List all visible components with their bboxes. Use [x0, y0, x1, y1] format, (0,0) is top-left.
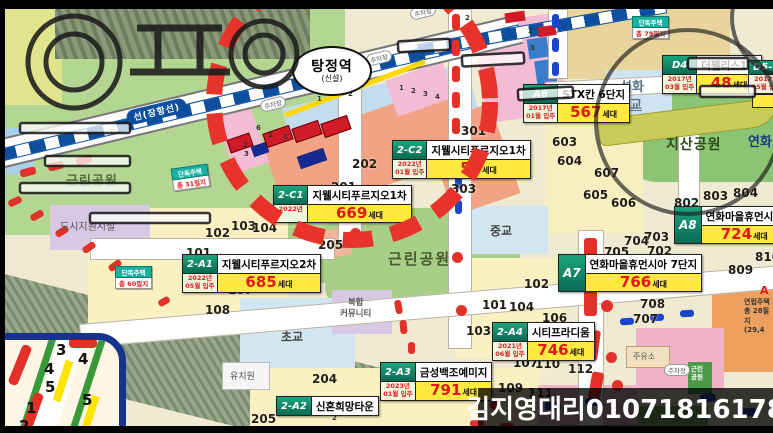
route-dash [452, 14, 460, 30]
complex-code: 2-A1 [182, 254, 218, 274]
complex-units: 685세대 [218, 274, 321, 293]
inset-red-bar-3 [69, 338, 97, 348]
route-dash [680, 310, 694, 318]
block-number: 603 [552, 135, 577, 149]
detached-housing-label: 단독주택총 79필지 [632, 16, 669, 39]
complex-code: 2-A3 [380, 362, 416, 382]
route-dash [399, 320, 407, 335]
detached-housing-title: 단독주택 [115, 266, 152, 278]
route-dash [552, 62, 559, 76]
city-support-label: 도시지원시설 [60, 218, 115, 233]
block-number: 205 [318, 238, 343, 252]
complex-units: 52세대 [427, 160, 530, 179]
gas-station-label: 주유소 [633, 351, 655, 362]
plot-number: 3 [530, 44, 535, 52]
frame-left [0, 0, 5, 433]
inset-red-bar-1 [7, 344, 32, 387]
complex-title: 지웰시티푸르지오1차 [427, 140, 530, 160]
inset-number: 5 [45, 378, 55, 396]
complex-units: 567세대 [558, 104, 630, 123]
plot-number: 2 [243, 141, 248, 149]
complex-year: 2021년 06월 입주 [492, 342, 528, 361]
plot-number: 3 [423, 90, 428, 98]
field-area-topleft [0, 9, 62, 105]
block-number: 605 [583, 188, 608, 202]
complex-label-D5-1: D5-1 2017년 05월 입주 [748, 60, 773, 94]
station-badge: 탕정역 (신설) [292, 46, 372, 96]
parking-label: 주차장 [664, 364, 690, 376]
complex-title: 지웰시티푸르지오2차 [218, 254, 321, 274]
aerial-photo-strip [55, 9, 310, 59]
plot-number: 1 [399, 84, 404, 92]
route-dash [452, 118, 460, 134]
d5-units-sliver [752, 94, 773, 108]
block-number: 707 [633, 312, 658, 326]
complex-code: A6 [523, 84, 558, 104]
block-number: 104 [509, 300, 534, 314]
complex-code: D5-1 [748, 60, 773, 75]
route-dash [455, 200, 462, 214]
complex-label-D4: D4 더팰리스1차 2017년 03월 입주 48세대 [662, 55, 762, 94]
complex-label-2A2: 2-A2 신혼희망타운 [276, 396, 379, 416]
kindergarten-label: 유치원 [230, 369, 255, 382]
route-dash [552, 38, 559, 52]
middle-school-label: 중교 [490, 222, 512, 239]
block-number: 301 [461, 124, 486, 138]
block-number: 108 [205, 303, 230, 317]
block-number: 708 [640, 297, 665, 311]
complex-year: 2022년 05월 입주 [182, 274, 218, 293]
complex-units: 746세대 [528, 342, 595, 361]
complex-code: 2-C1 [273, 185, 308, 205]
jisan-park-label: 지산공원 [666, 134, 722, 154]
complex-title: 연화마을휴먼시아 7단지 [586, 254, 703, 274]
block-number: 303 [451, 182, 476, 196]
complex-year: 2017년 05월 입주 [748, 75, 773, 94]
villa-code-label: A [760, 284, 769, 297]
map-canvas: 선(장항선) [0, 0, 773, 433]
block-number: 112 [568, 362, 593, 376]
plot-number: 2 [465, 14, 470, 22]
complex-year: 2023년 01월 입주 [380, 382, 416, 401]
block-number: 809 [728, 263, 753, 277]
complex-units: 724세대 [702, 226, 773, 244]
route-dot [452, 252, 463, 263]
block-number: 202 [352, 157, 377, 171]
complex-title: 연화마을휴먼시아 [702, 206, 773, 226]
frame-bottom [0, 426, 773, 433]
route-dot [601, 300, 613, 312]
complex-year: 2022년 01월 입주 [392, 160, 427, 179]
route-dot [350, 228, 361, 239]
complex-code: D4 [662, 55, 697, 75]
complex-label-2C2: 2-C2 지웰시티푸르지오1차 2022년 01월 입주 52세대 [392, 140, 531, 179]
complex-code: A8 [674, 206, 702, 244]
detached-housing-count: 총 60필지 [115, 278, 152, 289]
park-label-center: 근린공원 [388, 248, 451, 269]
complex-code: 2-A2 [276, 396, 312, 416]
complex-label-2C1: 2-C1 지웰시티푸르지오1차 2022년 669세대 [273, 185, 412, 223]
plot-number: 6 [256, 124, 261, 132]
complex-label-A7: A7 연화마을휴먼시아 7단지 766세대 [558, 254, 702, 292]
block-number: 205 [251, 412, 276, 426]
inset-number: 1 [26, 399, 36, 417]
complex-code: 2-C2 [392, 140, 427, 160]
block-number: 810 [755, 250, 773, 264]
complex-title: STX칸 6단지 [558, 84, 630, 104]
frame-top [0, 0, 773, 9]
block-number: 101 [482, 298, 507, 312]
complex-code: A7 [558, 254, 586, 292]
block-number: 803 [703, 189, 728, 203]
complex-label-A6: A6 STX칸 6단지 2017년 01월 입주 567세대 [523, 84, 630, 123]
plot-number: 4 [435, 93, 440, 101]
detached-housing-count: 총 79필지 [632, 28, 669, 39]
plot-number: 3 [470, 30, 475, 38]
plot-number: 1 [283, 133, 288, 141]
plot-number: 1 [268, 131, 273, 139]
route-dash [552, 14, 559, 28]
block-number: 204 [312, 372, 337, 386]
route-dot [456, 305, 467, 316]
contact-banner-text: 김지영대리01071816178 [466, 389, 773, 426]
route-dash [408, 342, 415, 354]
plot-number: 3 [244, 150, 249, 158]
inset-number: 5 [82, 391, 92, 409]
block-number: 102 [524, 277, 549, 291]
complex-label-A8: A8 연화마을휴먼시아 724세대 [674, 206, 773, 244]
contact-banner: 김지영대리01071816178 [478, 388, 773, 426]
block-number: 607 [594, 166, 619, 180]
complex-units: 766세대 [586, 274, 703, 292]
block-number: 604 [557, 154, 582, 168]
inset-number: 4 [78, 350, 88, 368]
complex-year: 2017년 03월 입주 [662, 75, 697, 94]
park-label-left: 근린공원 [66, 170, 118, 189]
yeonhwa-label: 연화 [748, 131, 772, 150]
station-subtitle: (신설) [322, 75, 343, 83]
block-number: 606 [611, 196, 636, 210]
complex-title: 시티프라디움 [528, 322, 595, 342]
detached-housing-title: 단독주택 [632, 16, 669, 28]
complex-title: 지웰시티푸르지오1차 [308, 185, 411, 205]
plot-number: 2 [411, 87, 416, 95]
complex-units: 669세대 [308, 205, 411, 223]
block-number: 102 [205, 226, 230, 240]
complex-title: 신혼희망타운 [312, 396, 379, 416]
elementary-school-label: 초교 [281, 328, 303, 345]
complex-year: 2017년 01월 입주 [523, 104, 558, 123]
plot-number: 1 [317, 95, 322, 103]
complex-label-2A4: 2-A4 시티프라디움 2021년 06월 입주 746세대 [492, 322, 595, 361]
detached-housing-label: 단독주택총 60필지 [115, 266, 152, 289]
inset-number: 3 [56, 341, 66, 359]
plot-number: 2 [528, 27, 533, 35]
station-name: 탕정역 [311, 60, 353, 74]
villa-block-label: 연립주택 총 28필지 (29,4 [744, 298, 773, 336]
complex-year: 2022년 [273, 205, 308, 223]
complex-title: 금성백조예미지 [416, 362, 493, 382]
park-small-label: 근린 공원 [691, 365, 703, 382]
community-label: 복합 커뮤니티 [340, 298, 371, 320]
route-dot [606, 352, 617, 363]
route-dash [452, 40, 460, 56]
block-number: 804 [733, 186, 758, 200]
route-dash [452, 92, 460, 108]
inset-number: 4 [44, 360, 54, 378]
complex-code: 2-A4 [492, 322, 528, 342]
block-number: 103 [466, 324, 491, 338]
complex-label-2A1: 2-A1 지웰시티푸르지오2차 2022년 05월 입주 685세대 [182, 254, 321, 293]
route-dash [452, 66, 460, 82]
